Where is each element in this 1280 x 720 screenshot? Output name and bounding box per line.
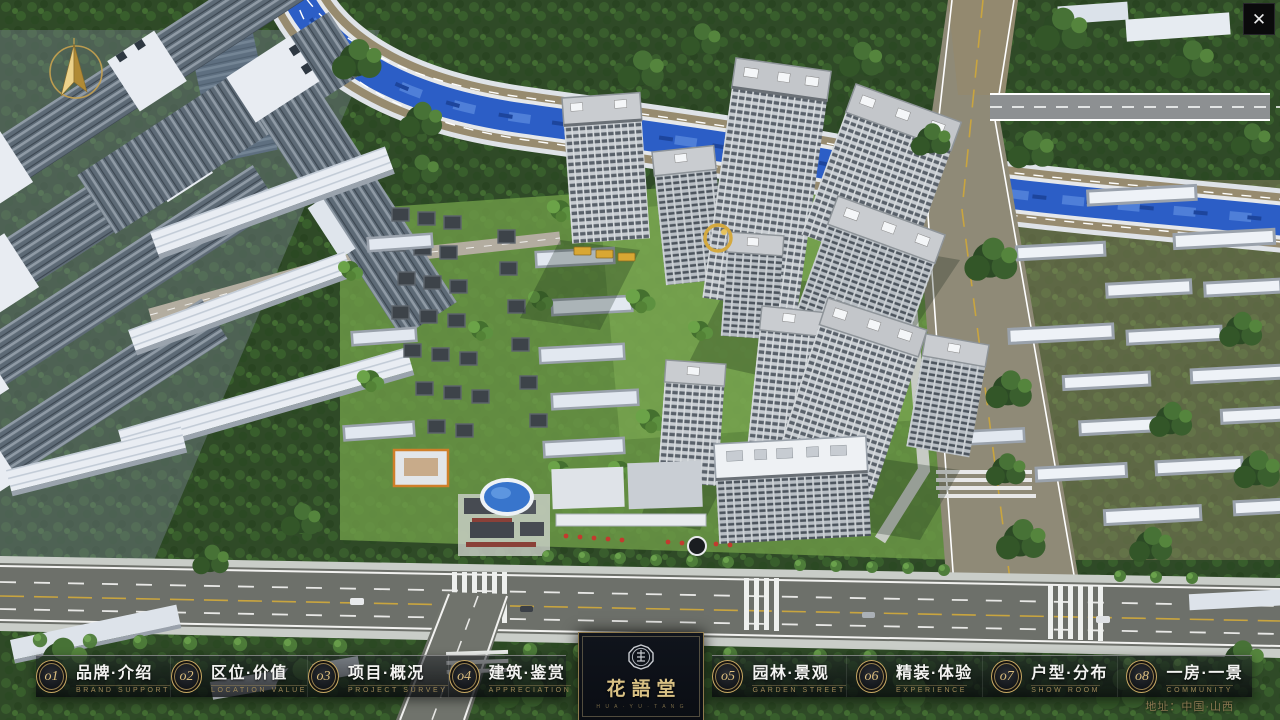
project-address: 地址：中国·山西 [1145, 698, 1234, 714]
nav-bar-left: o1 品牌·介绍 BRAND SUPPORT o2 区位·价值 LOCATION… [36, 655, 566, 697]
nav-badge-03: o3 [308, 660, 339, 693]
nav-item-floorplan[interactable]: o7 户型·分布 SHOW ROOM [982, 656, 1117, 697]
nav-badge-08: o8 [1126, 660, 1157, 693]
nav-caption: GARDEN STREET [752, 685, 845, 694]
nav-label: 户型·分布 [1031, 659, 1108, 683]
nav-caption: EXPERIENCE [896, 685, 967, 694]
nav-label: 建筑·鉴赏 [489, 659, 566, 683]
nav-caption: BRAND SUPPORT [76, 685, 170, 694]
nav-item-brand[interactable]: o1 品牌·介绍 BRAND SUPPORT [36, 656, 170, 697]
nav-badge-07: o7 [991, 660, 1022, 693]
nav-item-garden[interactable]: o5 园林·景观 GARDEN STREET [712, 656, 846, 697]
nav-label: 品牌·介绍 [76, 659, 153, 683]
nav-badge-02: o2 [171, 660, 202, 693]
nav-caption: APPRECIATION [489, 685, 572, 694]
nav-badge-04: o4 [449, 660, 480, 693]
nav-item-interior[interactable]: o6 精装·体验 EXPERIENCE [846, 656, 981, 697]
aerial-masterplan-rendering [0, 0, 1280, 720]
app-window: ✕ o1 品牌·介绍 BRAND SUPPORT o2 区位·价值 LOCATI… [0, 0, 1280, 720]
nav-label: 精装·体验 [896, 659, 973, 683]
close-icon: ✕ [1252, 11, 1266, 28]
nav-bar-right: o5 园林·景观 GARDEN STREET o6 精装·体验 EXPERIEN… [712, 655, 1252, 697]
swimming-pool [480, 478, 534, 516]
nav-badge-05: o5 [712, 660, 743, 693]
nav-caption: COMMUNITY [1166, 685, 1233, 694]
nav-label: 一房·一景 [1166, 659, 1243, 683]
nav-label: 园林·景观 [752, 659, 829, 683]
nav-label: 区位·价值 [211, 659, 288, 683]
logo-title: 花語堂 [600, 674, 681, 701]
nav-badge-01: o1 [36, 660, 67, 693]
nav-item-project[interactable]: o3 项目·概况 PROJECT SURVEY [307, 656, 448, 697]
logo-seal-icon [628, 644, 654, 670]
nav-item-views[interactable]: o8 一房·一景 COMMUNITY [1117, 656, 1252, 697]
nav-label: 项目·概况 [348, 659, 425, 683]
logo-subtitle: H U A · Y U · T A N G [596, 704, 685, 710]
nav-caption: PROJECT SURVEY [348, 685, 448, 694]
close-button[interactable]: ✕ [1243, 3, 1275, 35]
nav-caption: LOCATION VALUE [211, 685, 307, 694]
brand-logo[interactable]: 花語堂 H U A · Y U · T A N G [578, 632, 704, 720]
nav-caption: SHOW ROOM [1031, 685, 1100, 694]
nav-item-architecture[interactable]: o4 建筑·鉴赏 APPRECIATION [448, 656, 572, 697]
nav-item-location[interactable]: o2 区位·价值 LOCATION VALUE [170, 656, 307, 697]
nav-badge-06: o6 [856, 660, 887, 693]
